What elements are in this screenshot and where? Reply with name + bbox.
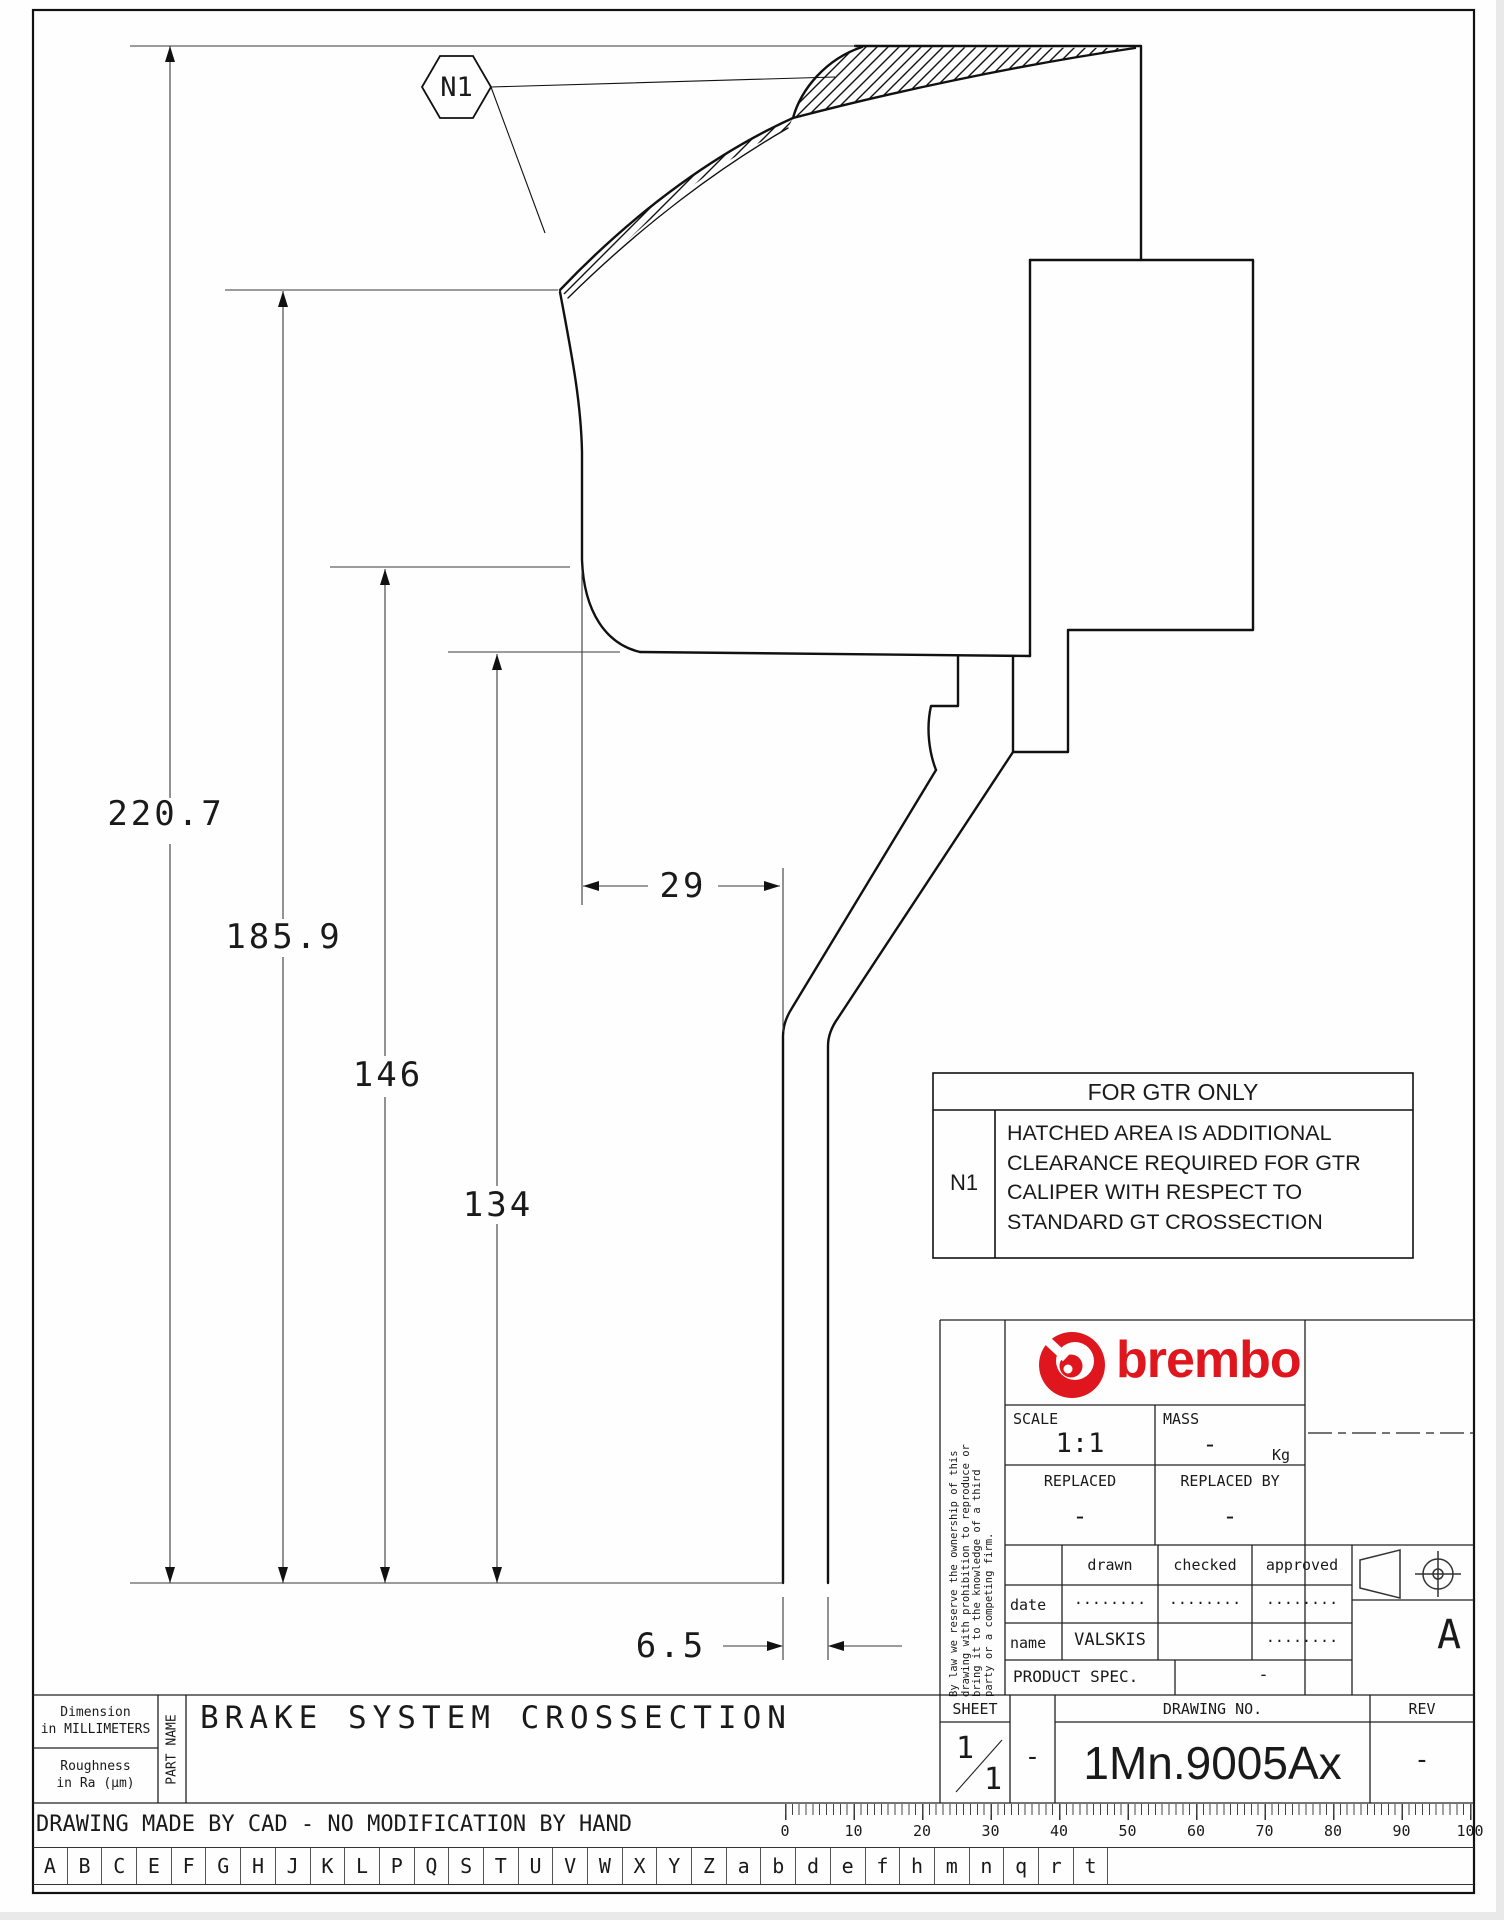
part-name-label: PART NAME	[165, 1696, 180, 1804]
format-letter: A	[1437, 1612, 1461, 1658]
mass-value: -	[1155, 1430, 1265, 1458]
dimension-note: Dimension in MILLIMETERS	[33, 1704, 158, 1738]
dim-label-146: 146	[346, 1055, 430, 1095]
font-letter-cell: Y	[657, 1848, 692, 1884]
col-checked-label: checked	[1158, 1556, 1252, 1574]
cad-note: DRAWING MADE BY CAD - NO MODIFICATION BY…	[36, 1812, 632, 1837]
font-letter-cell: h	[900, 1848, 935, 1884]
drawing-no-label: DRAWING NO.	[1055, 1700, 1370, 1718]
font-letter-cell: r	[1039, 1848, 1074, 1884]
rev-label: REV	[1370, 1700, 1474, 1718]
replaced-by-value: -	[1155, 1502, 1305, 1530]
font-letter-cell: J	[276, 1848, 311, 1884]
dim-label-6-5: 6.5	[628, 1626, 714, 1666]
ruler-tick-label: 90	[1392, 1822, 1410, 1840]
font-letter-cell: a	[727, 1848, 762, 1884]
font-letter-cell: e	[831, 1848, 866, 1884]
gtr-note-text: HATCHED AREA IS ADDITIONAL CLEARANCE REQ…	[1007, 1119, 1411, 1237]
product-spec-label: PRODUCT SPEC.	[1013, 1667, 1138, 1686]
copyright-disclaimer: By law we reserve the ownership of this …	[949, 1317, 995, 1697]
part-name-value: BRAKE SYSTEM CROSSECTION	[200, 1700, 792, 1736]
font-letter-cell: f	[866, 1848, 901, 1884]
font-letter-cell: S	[449, 1848, 484, 1884]
dim-label-134: 134	[456, 1185, 540, 1225]
date-approved: ........	[1252, 1590, 1352, 1608]
rev-value: -	[1370, 1745, 1474, 1775]
sheet-label: SHEET	[940, 1700, 1010, 1718]
sheet-dash: -	[1010, 1742, 1055, 1772]
font-letter-cell: t	[1074, 1848, 1109, 1884]
scale-ruler-ticks	[785, 1804, 1473, 1820]
font-letter-cell: A	[33, 1848, 68, 1884]
cad-sheet: 220.7 185.9 146 134 29 6.5 N1 FOR GTR ON…	[0, 0, 1504, 1920]
font-letter-cell: T	[484, 1848, 519, 1884]
font-letter-cell: W	[588, 1848, 623, 1884]
ruler-tick-label: 80	[1324, 1822, 1342, 1840]
font-letter-cell: Z	[692, 1848, 727, 1884]
replaced-by-label: REPLACED BY	[1155, 1472, 1305, 1490]
dimension-arrowheads	[165, 46, 844, 1651]
scale-label: SCALE	[1013, 1410, 1058, 1428]
font-letter-cell: m	[935, 1848, 970, 1884]
product-spec-value: -	[1175, 1665, 1352, 1685]
font-letter-cell: U	[519, 1848, 554, 1884]
scale-ruler-labels: 0102030405060708090100	[785, 1822, 1473, 1842]
gtr-note-ref: N1	[933, 1170, 995, 1196]
ruler-tick-label: 60	[1187, 1822, 1205, 1840]
font-letter-cell: Q	[415, 1848, 450, 1884]
ruler-tick-label: 100	[1456, 1822, 1483, 1840]
font-letter-cell: P	[380, 1848, 415, 1884]
col-approved-label: approved	[1252, 1556, 1352, 1574]
font-letter-cell: b	[761, 1848, 796, 1884]
font-letter-row-filler	[1108, 1848, 1474, 1884]
font-letter-cell: G	[206, 1848, 241, 1884]
ruler-tick-label: 20	[913, 1822, 931, 1840]
font-letter-cell: H	[241, 1848, 276, 1884]
n1-callout-label: N1	[422, 72, 491, 103]
mass-unit: Kg	[1272, 1446, 1290, 1464]
font-letter-cell: V	[553, 1848, 588, 1884]
font-letter-cell: L	[345, 1848, 380, 1884]
ruler-tick-label: 70	[1255, 1822, 1273, 1840]
scale-value: 1:1	[1005, 1428, 1155, 1459]
drawing-no-value: 1Mn.9005Ax	[1055, 1736, 1370, 1790]
dim-label-220-7: 220.7	[100, 794, 232, 834]
font-letter-cell: B	[68, 1848, 103, 1884]
name-label: name	[1010, 1634, 1046, 1652]
date-label: date	[1010, 1596, 1046, 1614]
font-letter-cell: q	[1004, 1848, 1039, 1884]
gtr-note-title: FOR GTR ONLY	[933, 1079, 1413, 1106]
dimension-lines	[130, 46, 902, 1660]
font-letter-row: ABCEFGHJKLPQSTUVWXYZabdefhmnqrt	[33, 1847, 1474, 1885]
roughness-note: Roughness in Ra (µm)	[33, 1758, 158, 1792]
ruler-tick-label: 30	[981, 1822, 999, 1840]
name-drawn: VALSKIS	[1062, 1630, 1158, 1650]
projection-symbol	[1360, 1550, 1461, 1598]
font-letter-cell: C	[102, 1848, 137, 1884]
font-letter-cell: n	[970, 1848, 1005, 1884]
font-letter-cell: K	[311, 1848, 346, 1884]
dim-label-185-9: 185.9	[218, 917, 350, 957]
col-drawn-label: drawn	[1062, 1556, 1158, 1574]
dim-label-29: 29	[653, 866, 713, 906]
brembo-wordmark: brembo	[1116, 1330, 1301, 1390]
replaced-label: REPLACED	[1005, 1472, 1155, 1490]
date-drawn: ........	[1062, 1590, 1158, 1608]
mass-label: MASS	[1163, 1410, 1199, 1428]
font-letter-cell: X	[623, 1848, 658, 1884]
date-checked: ........	[1158, 1590, 1252, 1608]
font-letter-cell: d	[796, 1848, 831, 1884]
brembo-logo-icon	[1036, 1330, 1105, 1398]
replaced-value: -	[1005, 1502, 1155, 1530]
font-letter-cell: F	[172, 1848, 207, 1884]
ruler-tick-label: 40	[1050, 1822, 1068, 1840]
ruler-tick-label: 0	[780, 1822, 789, 1840]
font-letter-cell: E	[137, 1848, 172, 1884]
name-approved: ........	[1252, 1628, 1352, 1646]
ruler-tick-label: 10	[844, 1822, 862, 1840]
sheet-current: 1	[956, 1731, 974, 1766]
ruler-tick-label: 50	[1118, 1822, 1136, 1840]
sheet-total: 1	[984, 1762, 1002, 1797]
